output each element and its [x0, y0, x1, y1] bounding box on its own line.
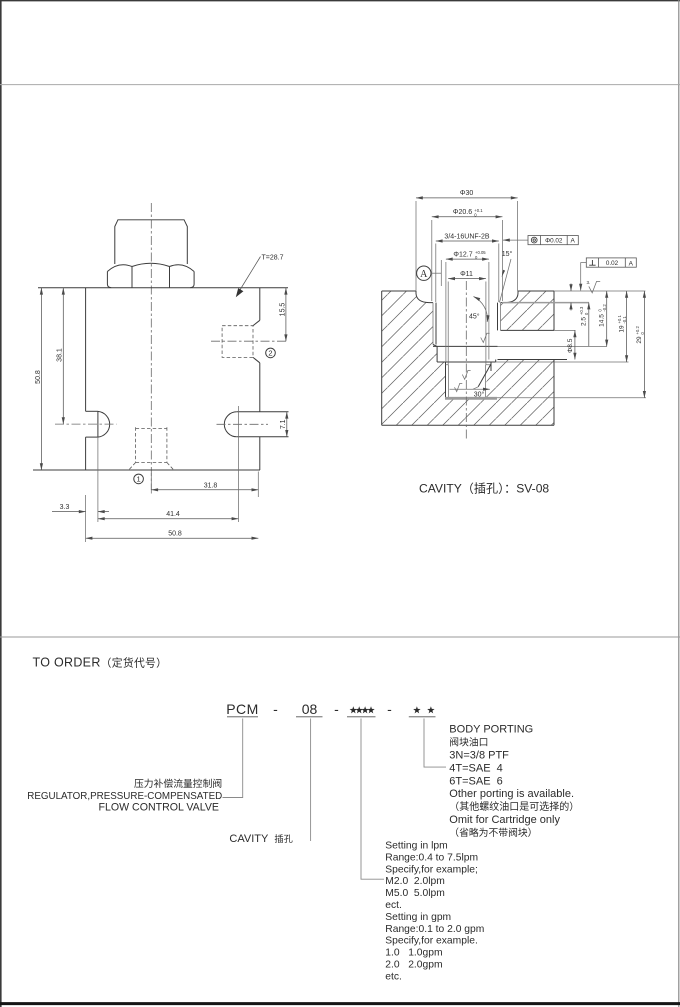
svg-text:2.5: 2.5	[580, 317, 587, 326]
svg-text:6T=SAE 6: 6T=SAE 6	[449, 775, 503, 787]
svg-text:Setting in gpm: Setting in gpm	[385, 912, 451, 923]
svg-text:50.8: 50.8	[35, 370, 42, 384]
svg-text:15.5: 15.5	[279, 303, 286, 317]
svg-text:38.1: 38.1	[57, 348, 64, 362]
svg-text:30°: 30°	[474, 391, 485, 399]
svg-text:14.5: 14.5	[599, 314, 606, 327]
svg-text:PCM: PCM	[226, 701, 259, 717]
svg-text:3.3: 3.3	[60, 504, 70, 511]
svg-text:A: A	[420, 269, 428, 280]
svg-text:19: 19	[618, 325, 625, 333]
svg-text:Range:0.4 to 7.5lpm: Range:0.4 to 7.5lpm	[385, 852, 478, 863]
svg-text:-: -	[334, 701, 339, 717]
svg-text:Other porting is available.: Other porting is available.	[449, 788, 574, 800]
svg-text:BODY PORTING: BODY PORTING	[449, 724, 533, 736]
svg-text:-: -	[387, 701, 392, 717]
svg-text:45°: 45°	[469, 313, 480, 321]
svg-text:Φ0.02: Φ0.02	[545, 238, 563, 245]
svg-text:T=28.7: T=28.7	[262, 255, 284, 262]
svg-text:CAVITY（插孔）：SV-08: CAVITY（插孔）：SV-08	[419, 482, 549, 496]
svg-text:2: 2	[268, 349, 272, 358]
svg-text:15°: 15°	[502, 250, 513, 258]
svg-text:Φ12.7: Φ12.7	[453, 252, 472, 259]
svg-text:-: -	[273, 701, 278, 717]
svg-text:1: 1	[137, 475, 141, 484]
svg-text:ect.: ect.	[385, 900, 402, 911]
svg-text:3N=3/8 PTF: 3N=3/8 PTF	[449, 750, 509, 762]
svg-text:Specify,for example.: Specify,for example.	[385, 936, 478, 947]
svg-text:M2.0 2.0lpm: M2.0 2.0lpm	[385, 876, 445, 887]
svg-text:Omit for Cartridge only: Omit for Cartridge only	[449, 814, 560, 826]
svg-text:7.1: 7.1	[280, 419, 287, 429]
svg-text:Φ11: Φ11	[460, 271, 473, 278]
svg-text:4T=SAE 4: 4T=SAE 4	[449, 762, 503, 774]
svg-text:REGULATOR,PRESSURE-COMPENSATED: REGULATOR,PRESSURE-COMPENSATED	[27, 791, 222, 802]
svg-text:Setting in lpm: Setting in lpm	[385, 841, 447, 852]
svg-text:Φ20.6: Φ20.6	[453, 209, 472, 216]
svg-text:压力补偿流量控制阀: 压力补偿流量控制阀	[134, 777, 222, 790]
svg-text:M5.0 5.0lpm: M5.0 5.0lpm	[385, 888, 445, 899]
svg-text:（其他螺纹油口是可选择的）: （其他螺纹油口是可选择的）	[449, 800, 579, 813]
svg-text:FLOW CONTROL VALVE: FLOW CONTROL VALVE	[99, 802, 219, 814]
svg-text:0.02: 0.02	[606, 260, 619, 267]
svg-text:3.: 3.	[587, 280, 591, 285]
svg-text:31.8: 31.8	[204, 482, 218, 489]
svg-text:（省略为不带阀块）: （省略为不带阀块）	[449, 826, 537, 839]
svg-text:Range:0.1 to 2.0 gpm: Range:0.1 to 2.0 gpm	[385, 924, 484, 935]
svg-text:A: A	[629, 260, 634, 267]
svg-text:A: A	[571, 238, 576, 245]
svg-text:TO ORDER（定货代号）: TO ORDER（定货代号）	[33, 656, 168, 670]
svg-text:etc.: etc.	[385, 971, 402, 982]
svg-text:-0.2: -0.2	[602, 304, 607, 312]
svg-text:Φ8.5: Φ8.5	[567, 338, 574, 353]
svg-text:CAVITY 插孔: CAVITY 插孔	[229, 833, 292, 845]
svg-text:阀块油口: 阀块油口	[449, 736, 488, 749]
svg-text:2.0 2.0gpm: 2.0 2.0gpm	[385, 960, 442, 971]
svg-text:29: 29	[636, 336, 643, 344]
svg-text:Φ30: Φ30	[460, 190, 473, 197]
svg-text:08: 08	[302, 701, 318, 717]
svg-text:41.4: 41.4	[166, 511, 180, 518]
svg-text:50.8: 50.8	[168, 531, 182, 538]
svg-text:-0.1: -0.1	[622, 316, 627, 324]
svg-text:3/4-16UNF-2B: 3/4-16UNF-2B	[444, 234, 489, 241]
svg-text:Specify,for example;: Specify,for example;	[385, 864, 478, 875]
svg-text:1.0 1.0gpm: 1.0 1.0gpm	[385, 948, 442, 959]
